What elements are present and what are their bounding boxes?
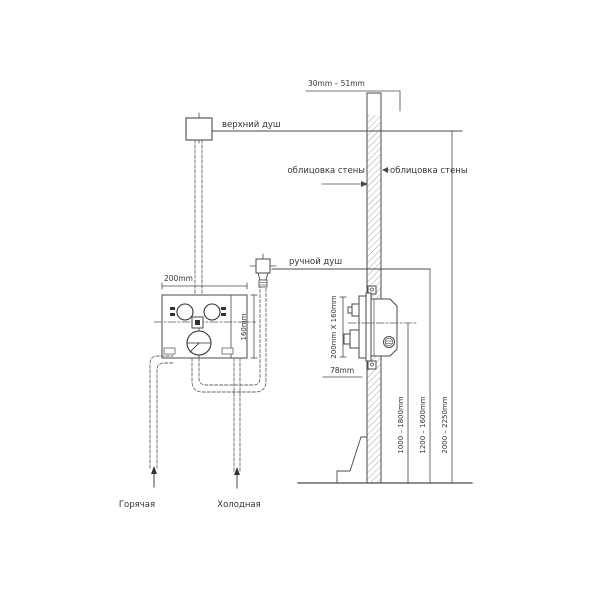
riser-pipe [195,140,202,295]
valve-upper-knob-tip [348,307,352,313]
overhead-shower-head [186,113,212,143]
valve-depth-dimension: 78mm [323,366,362,377]
hand-shower-height-range-label: 1200 – 1600mm [419,396,427,453]
installation-diagram: 30mm – 51mm облицовка стены облицовка ст… [0,0,600,600]
valve-height-range-label: 1000 – 1800mm [397,396,405,453]
mixer-width-dimension: 200mm [162,274,247,289]
arrow-up-icon [234,467,240,475]
hot-valve-icon [177,304,193,320]
arrow-up-icon [151,466,157,474]
cold-water-label: Холодная [217,500,260,510]
wall-thickness-label: 30mm – 51mm [308,79,365,88]
overhead-height-range-label: 2000 – 2250mm [441,396,449,453]
cold-supply-annotation: Холодная [217,467,260,510]
valve-handle [350,330,359,348]
cold-supply-pipe [234,358,240,471]
valve-flange-plate [366,293,371,361]
mixer-width-label: 200mm [164,274,193,283]
mixer-height-label: 160mm [240,313,248,340]
hand-shower-holder [250,254,276,287]
side-view: 30mm – 51mm облицовка стены облицовка ст… [212,79,472,483]
valve-depth-label: 78mm [330,366,354,375]
cold-valve-icon [204,304,220,320]
hand-shower-label: ручной душ [289,257,342,267]
valve-plate-dimension: 200mm X 160mm [330,295,346,358]
valve-plate-size-label: 200mm X 160mm [330,295,338,358]
wall-cladding-left: облицовка стены [287,166,368,187]
hot-water-label: Горячая [119,500,155,510]
diverter-button [192,317,203,328]
overhead-shower-label: верхний душ [222,120,281,130]
valve-face-plate [359,296,366,358]
wall-cladding-right-label: облицовка стены [390,166,468,176]
wall-cladding-right: облицовка стены [382,166,468,176]
diagram-svg: 30mm – 51mm облицовка стены облицовка ст… [0,0,600,600]
shower-tray-profile [337,437,367,483]
hot-supply-pipe [150,356,173,468]
hot-supply-annotation: Горячая [119,466,157,510]
valve-handle-tip [344,334,350,344]
wall-cladding-left-label: облицовка стены [287,166,365,176]
valve-housing [371,299,397,356]
mixer-tab-right [222,348,233,354]
valve-upper-knob [352,304,359,316]
wall-thickness-dimension: 30mm – 51mm [306,79,400,111]
mixer-tab-left [164,348,175,354]
concealed-valve-body [344,286,397,369]
